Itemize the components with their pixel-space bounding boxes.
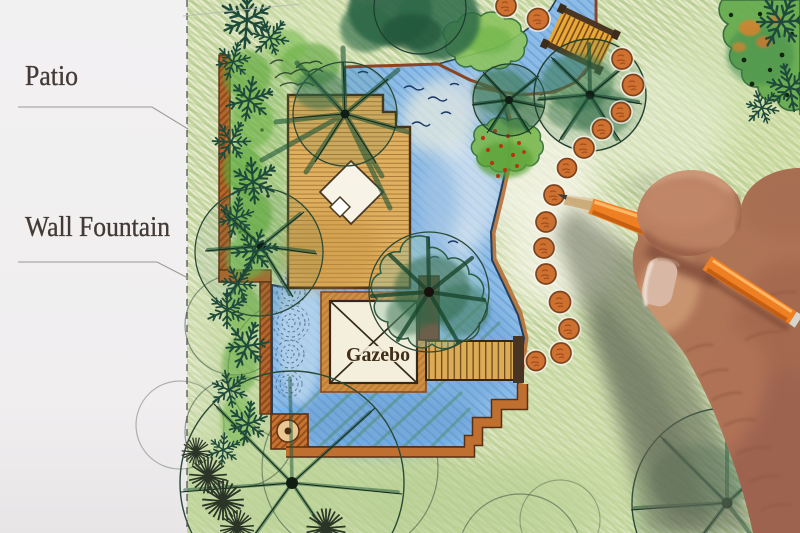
svg-text:Patio: Patio xyxy=(25,60,78,92)
svg-text:Wall Fountain: Wall Fountain xyxy=(25,211,170,243)
svg-text:Gazebo: Gazebo xyxy=(346,344,410,366)
